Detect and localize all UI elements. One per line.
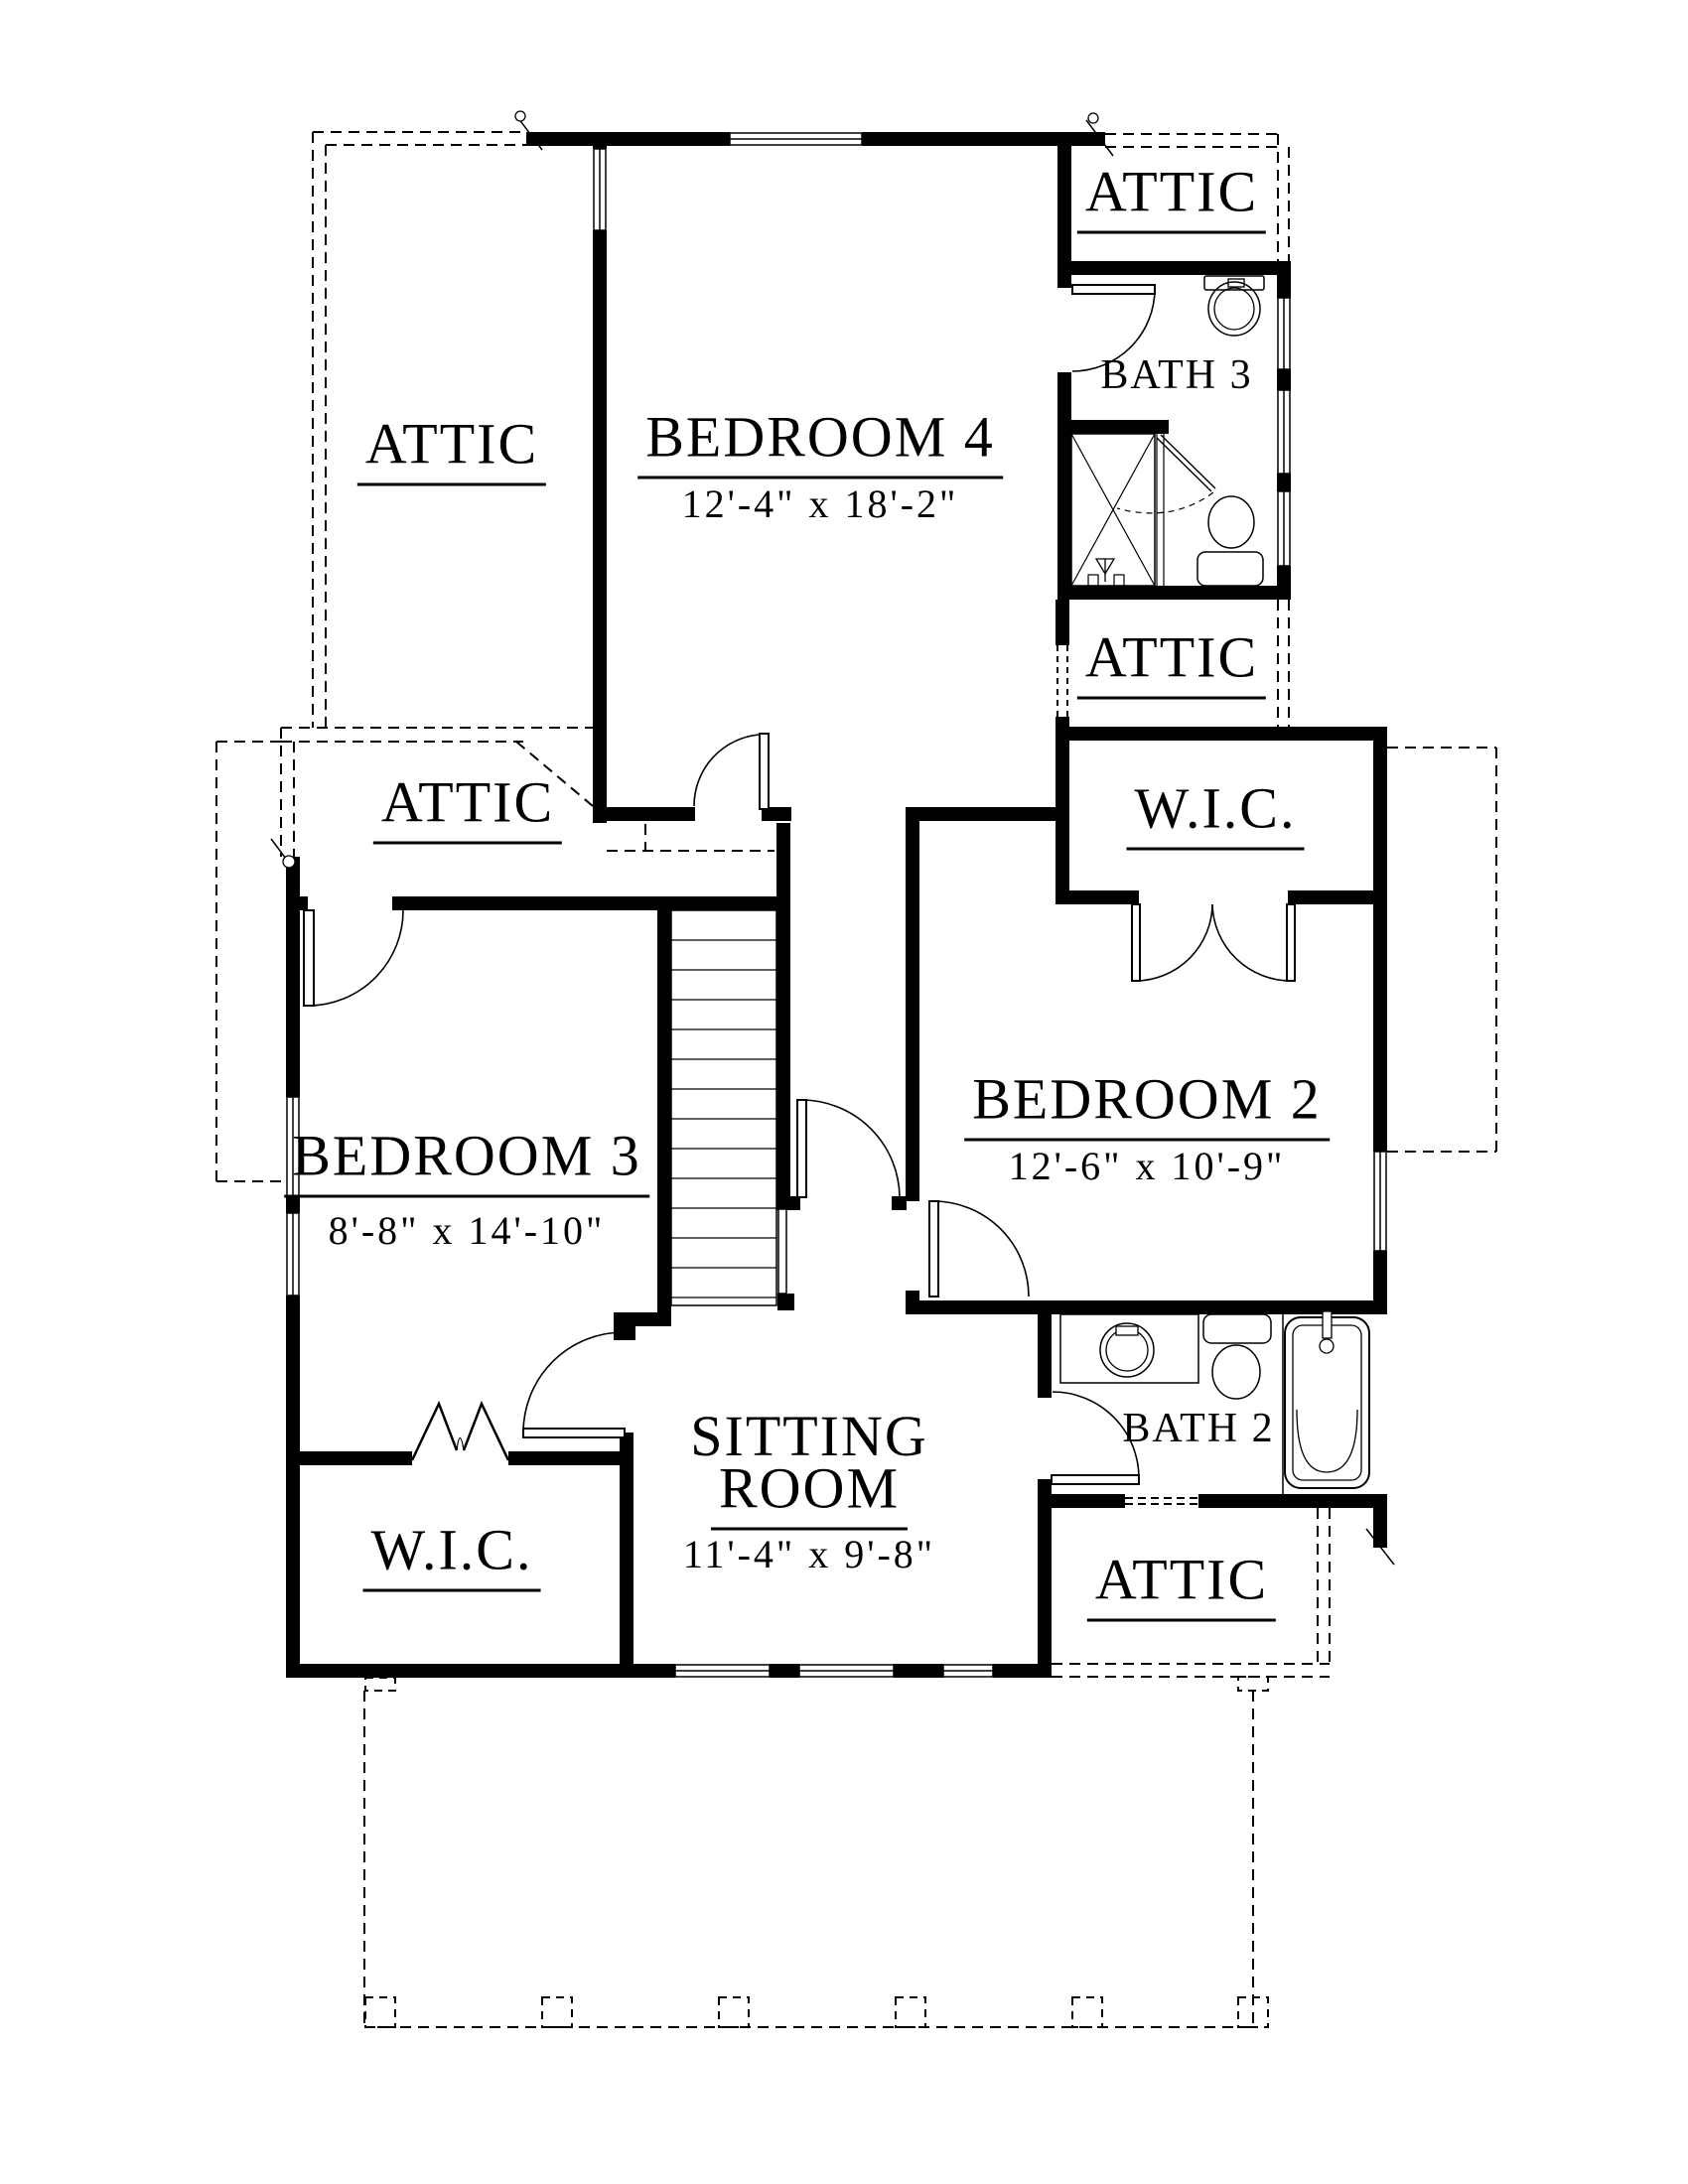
room-label-bedroom-4: BEDROOM 4 xyxy=(637,409,1003,479)
room-label-attic-top-right: ATTIC xyxy=(1077,164,1266,234)
room-dims-bedroom-3: 8'-8" x 14'-10" xyxy=(329,1211,606,1251)
room-label-attic-left-small: ATTIC xyxy=(373,774,562,845)
hall-door xyxy=(797,1100,900,1197)
room-label-attic-bottom-right: ATTIC xyxy=(1087,1552,1276,1622)
sink-icon xyxy=(1203,1314,1271,1399)
room-label-sitting-room-line2: ROOM xyxy=(711,1460,908,1531)
room-dims-sitting-room: 11'-4" x 9'-8" xyxy=(683,1535,935,1574)
floor-plan-sheet: ATTIC BEDROOM 4 12'-4" x 18'-2" BATH 3 A… xyxy=(0,0,1688,2184)
bedroom3-door xyxy=(304,910,403,1006)
shower-icon xyxy=(1071,434,1215,586)
bath2-fixtures xyxy=(1060,1311,1369,1494)
room-label-wic-right: W.I.C. xyxy=(1127,780,1305,851)
washer-icon xyxy=(1060,1314,1198,1383)
room-label-bath-3: BATH 3 xyxy=(1092,354,1260,400)
room-label-bedroom-2: BEDROOM 2 xyxy=(964,1071,1330,1142)
room-dims-bedroom-4: 12'-4" x 18'-2" xyxy=(682,484,959,524)
stairs xyxy=(671,910,786,1305)
room-label-attic-mid-right: ATTIC xyxy=(1077,629,1266,700)
room-label-wic-left: W.I.C. xyxy=(363,1522,541,1592)
stair-railing xyxy=(778,1209,786,1294)
room-dims-bedroom-2: 12'-6" x 10'-9" xyxy=(1009,1147,1286,1186)
room-label-attic-left: ATTIC xyxy=(357,416,546,486)
floor-plan-drawing xyxy=(0,0,1688,2184)
room-label-bedroom-3: BEDROOM 3 xyxy=(284,1128,649,1198)
porch-outline xyxy=(364,1677,1268,2027)
bedroom2-door xyxy=(929,1201,1029,1297)
toilet-icon xyxy=(1204,276,1264,336)
bathtub-icon xyxy=(1283,1311,1369,1494)
wic-right-double-door xyxy=(1132,904,1295,981)
wic-left-bifold-door xyxy=(412,1404,508,1460)
porch-posts xyxy=(365,1997,1268,2027)
sink-icon xyxy=(1197,496,1263,586)
sitting-room-door xyxy=(523,1332,625,1437)
room-label-bath-2: BATH 2 xyxy=(1114,1408,1282,1453)
bedroom4-door xyxy=(694,734,769,809)
